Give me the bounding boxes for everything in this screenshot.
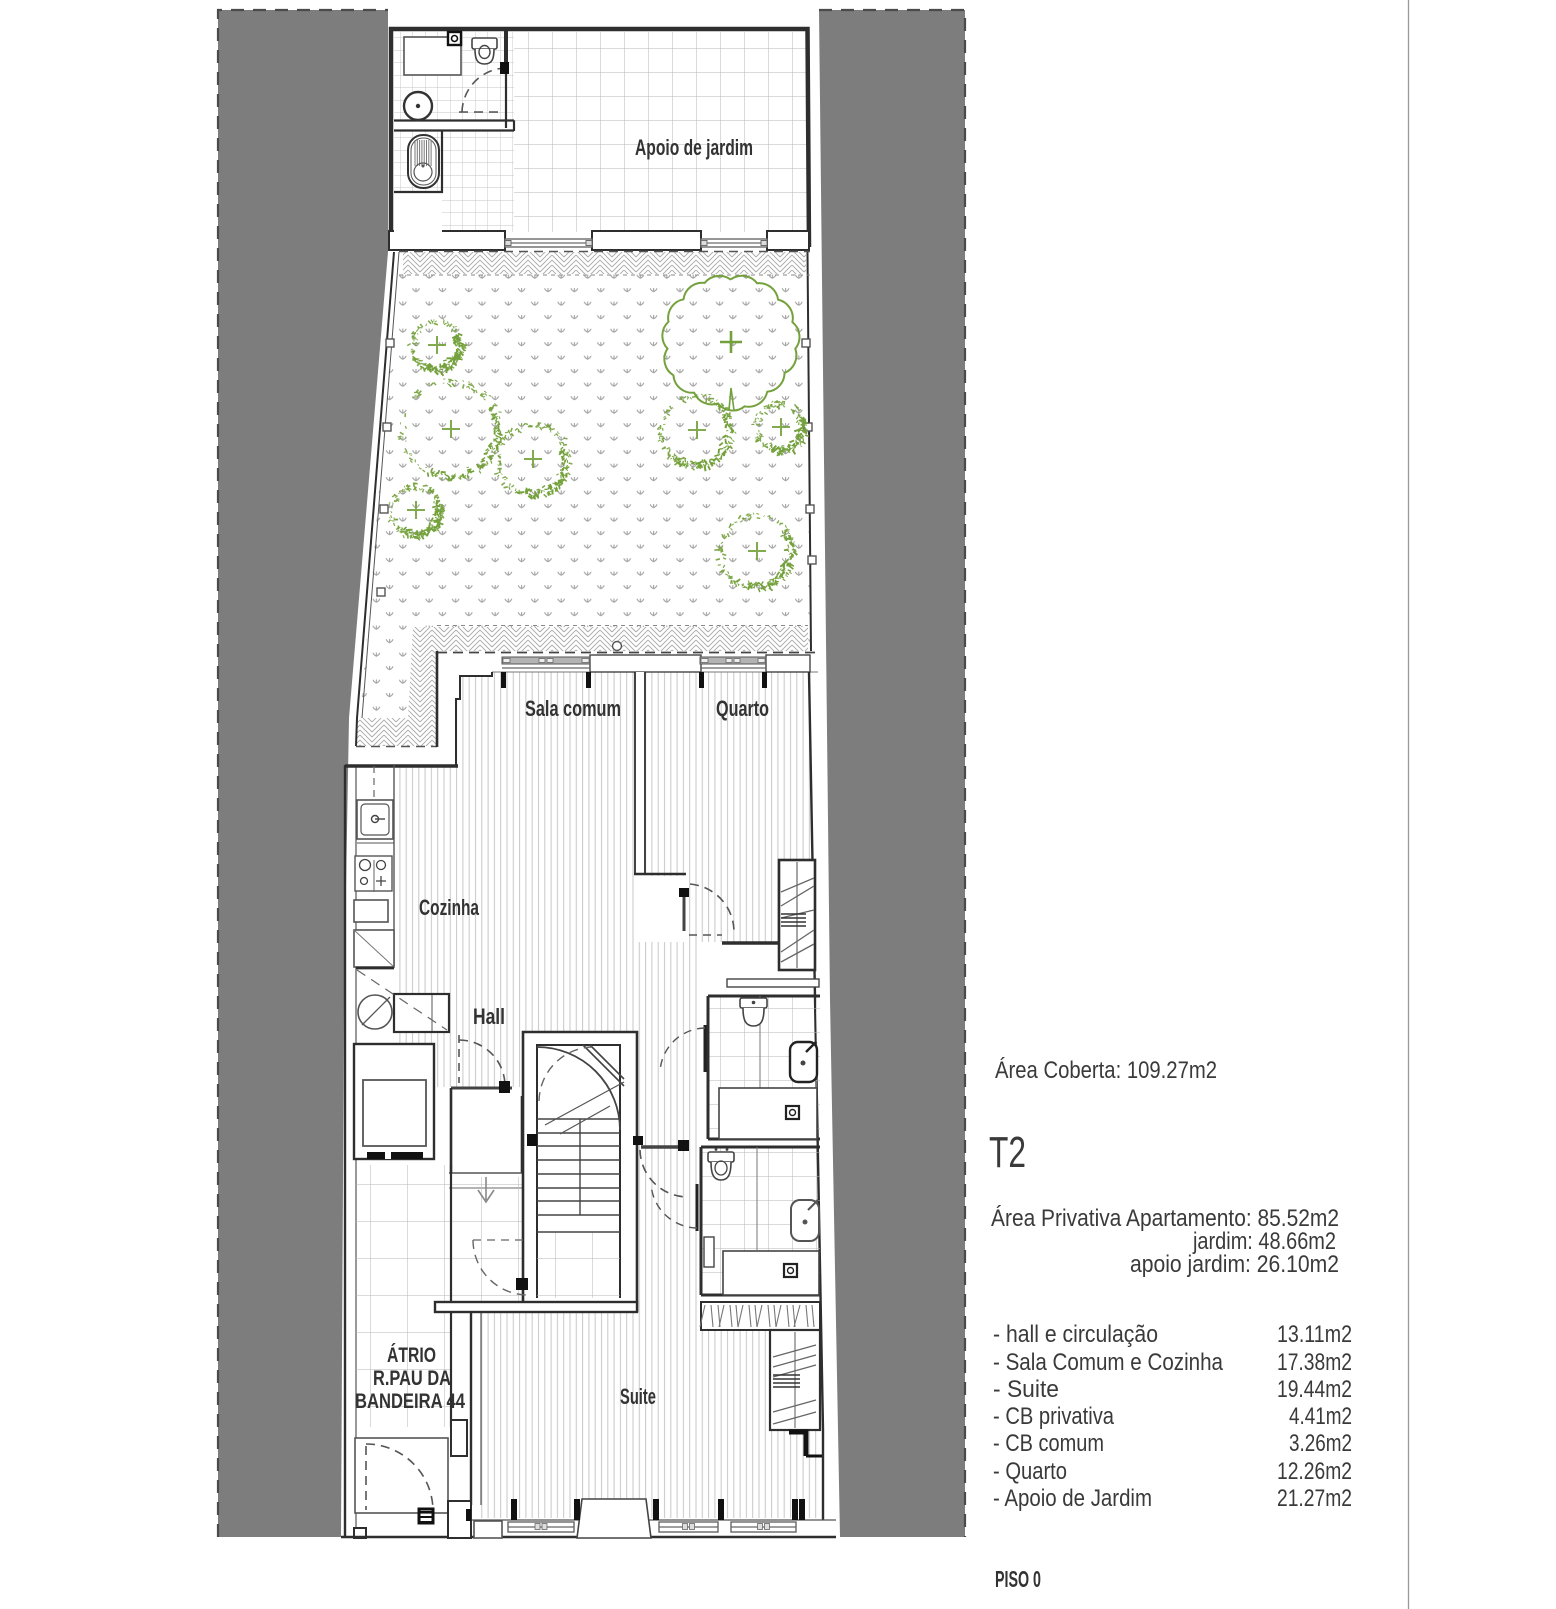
svg-text:4.41m2: 4.41m2 xyxy=(1289,1403,1352,1430)
svg-text:19.44m2: 19.44m2 xyxy=(1277,1376,1352,1403)
svg-text:R.PAU DA: R.PAU DA xyxy=(373,1367,451,1390)
svg-text:- Apoio de Jardim: - Apoio de Jardim xyxy=(993,1485,1152,1512)
svg-text:- CB comum: - CB comum xyxy=(993,1430,1104,1457)
svg-text:13.11m2: 13.11m2 xyxy=(1277,1321,1352,1348)
svg-text:Hall: Hall xyxy=(473,1004,505,1029)
svg-text:PISO 0: PISO 0 xyxy=(995,1566,1041,1592)
svg-text:12.26m2: 12.26m2 xyxy=(1277,1458,1352,1485)
svg-text:Cozinha: Cozinha xyxy=(419,895,480,920)
svg-text:- Quarto: - Quarto xyxy=(993,1458,1067,1485)
svg-text:T2: T2 xyxy=(989,1128,1026,1177)
svg-text:- CB privativa: - CB privativa xyxy=(993,1403,1115,1430)
svg-text:Suite: Suite xyxy=(620,1384,656,1409)
svg-text:3.26m2: 3.26m2 xyxy=(1289,1430,1352,1457)
svg-text:ÁTRIO: ÁTRIO xyxy=(387,1344,436,1367)
svg-text:- Suite: - Suite xyxy=(993,1376,1059,1403)
svg-text:Sala comum: Sala comum xyxy=(525,696,621,721)
svg-text:- hall e circulação: - hall e circulação xyxy=(993,1321,1158,1348)
svg-text:Quarto: Quarto xyxy=(716,696,769,721)
svg-text:21.27m2: 21.27m2 xyxy=(1277,1485,1352,1512)
svg-text:17.38m2: 17.38m2 xyxy=(1277,1349,1352,1376)
svg-text:BANDEIRA 44: BANDEIRA 44 xyxy=(355,1390,465,1413)
svg-text:apoio jardim: 26.10m2: apoio jardim: 26.10m2 xyxy=(1130,1251,1339,1278)
svg-text:- Sala Comum e Cozinha: - Sala Comum e Cozinha xyxy=(993,1349,1224,1376)
svg-text:Apoio de jardim: Apoio de jardim xyxy=(635,135,753,160)
svg-text:Área Coberta: 109.27m2: Área Coberta: 109.27m2 xyxy=(995,1057,1217,1084)
